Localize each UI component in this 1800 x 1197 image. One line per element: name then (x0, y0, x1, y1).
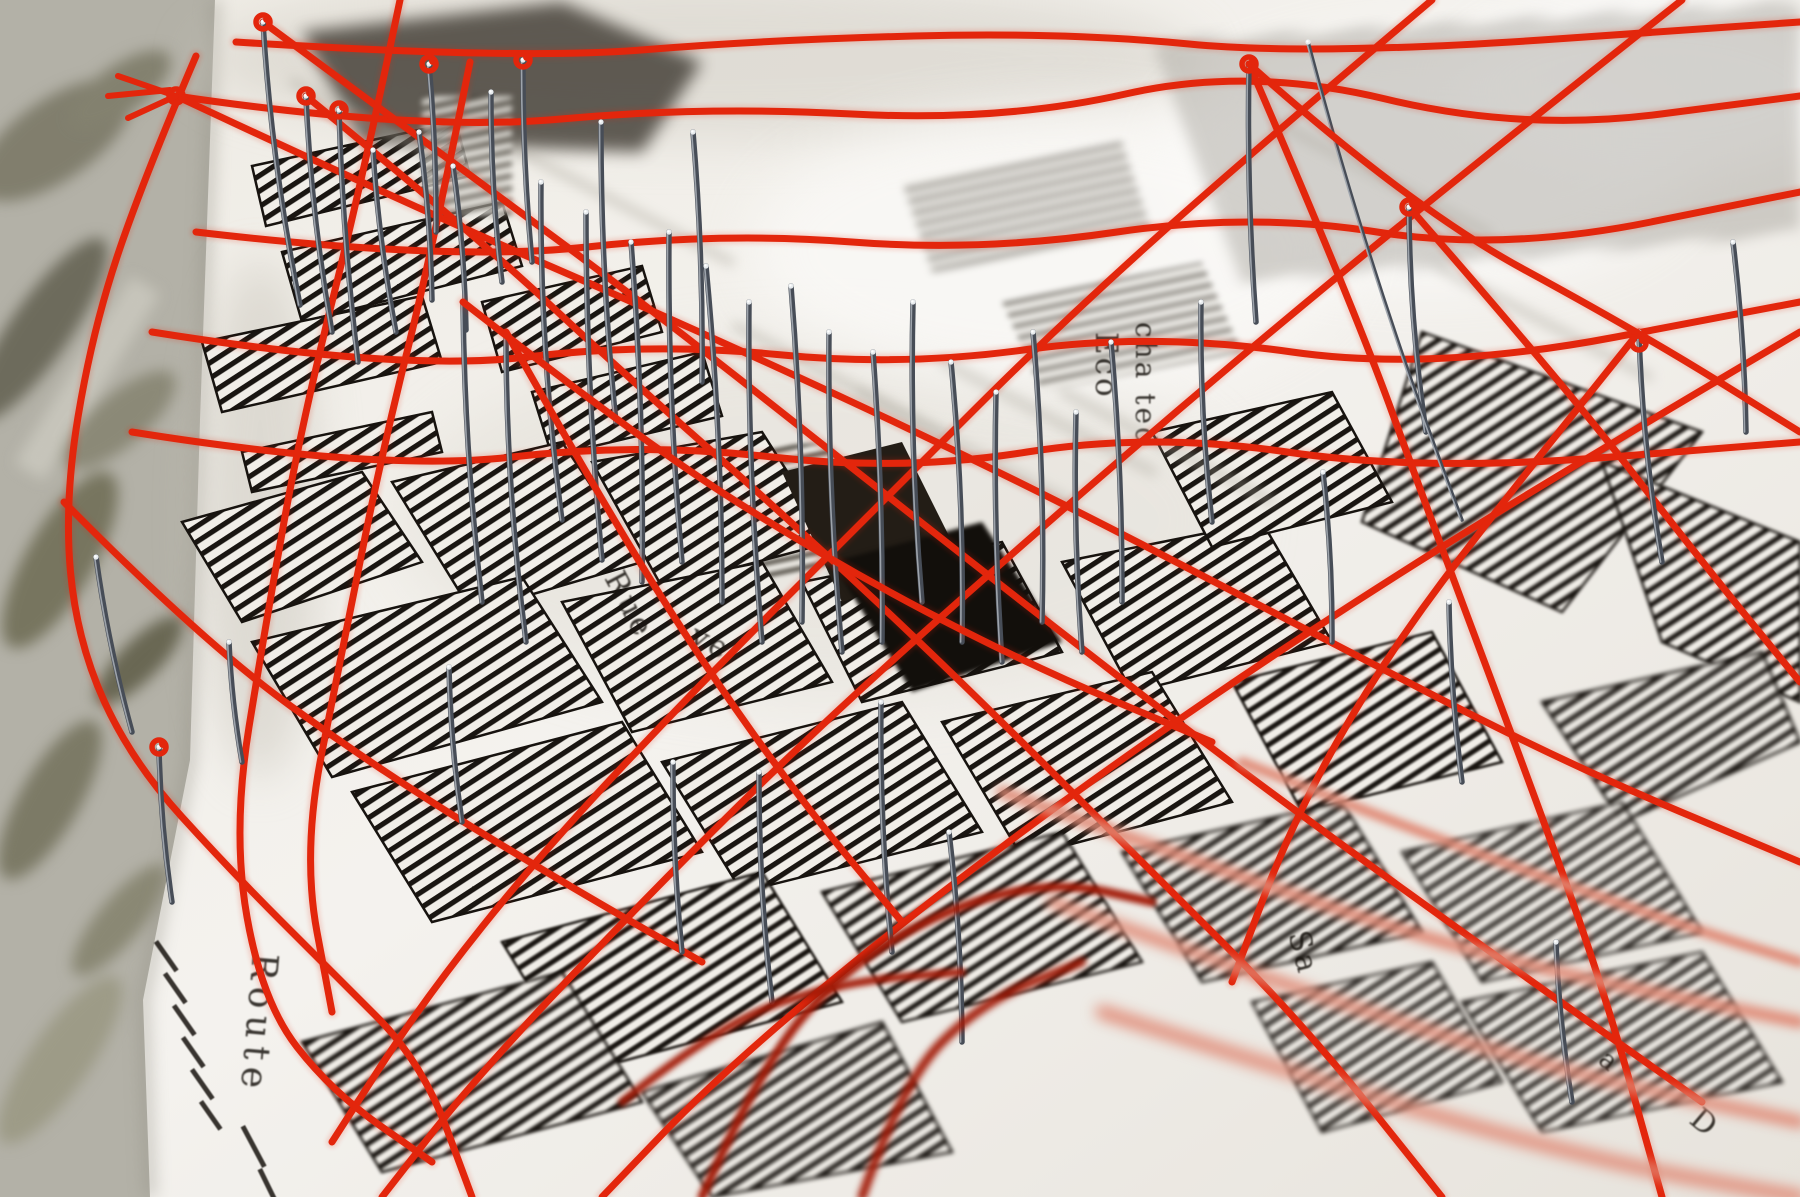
thread-knot-wrap (263, 15, 271, 23)
pin-tip-glint (1447, 600, 1449, 602)
pin-tip-glint (691, 130, 693, 132)
pin-tip-glint (871, 350, 873, 352)
pin-tip-glint (599, 120, 601, 122)
thread-knot-wrap (339, 103, 347, 111)
pin-tip-glint (757, 770, 759, 772)
pin-tip-glint (747, 300, 749, 302)
stitched-map-scene: RouteRueveEcocha tedSaaD (0, 0, 1800, 1197)
pin-tip-glint (947, 830, 949, 832)
pin-tip-glint (427, 62, 429, 64)
thread-knot-wrap (306, 89, 314, 97)
pin-tip-glint (94, 555, 96, 557)
pin-tip-glint (337, 108, 339, 110)
pin-tip-glint (911, 300, 913, 302)
pin-tip-glint (994, 390, 996, 392)
pin-tip-glint (1554, 940, 1556, 942)
pin-tip-glint (521, 58, 523, 60)
artwork-photo: RouteRueveEcocha tedSaaD (0, 0, 1800, 1197)
pin-tip-glint (1321, 470, 1323, 472)
pin-tip-glint (789, 284, 791, 286)
thread-knot-wrap (429, 57, 437, 65)
pin-tip-glint (539, 180, 541, 182)
thread-knot-wrap (1249, 57, 1257, 65)
pin-tip-glint (227, 640, 229, 642)
pin-tip-glint (671, 760, 673, 762)
pin-tip-glint (1731, 240, 1733, 242)
pin-tip-glint (1109, 340, 1111, 342)
pin-tip-glint (489, 90, 491, 92)
pin-tip-glint (1407, 205, 1409, 207)
pin-tip-glint (1031, 330, 1033, 332)
pin-tip-glint (447, 665, 449, 667)
pin-tip-glint (157, 745, 159, 747)
thread-knot-wrap (523, 53, 531, 61)
pin-tip-glint (704, 264, 706, 266)
thread-knot-wrap (1409, 200, 1417, 208)
pin-tip-glint (371, 148, 373, 150)
thread-knot-wrap (159, 740, 167, 748)
pin-tip-glint (304, 94, 306, 96)
pin-tip-glint (1199, 300, 1201, 302)
pin-tip-glint (949, 360, 951, 362)
pin-tip-glint (261, 20, 263, 22)
pin-tip-glint (584, 210, 586, 212)
thread-knot-wrap (1639, 336, 1647, 344)
pin-tip-glint (667, 230, 669, 232)
pin-tip-glint (879, 700, 881, 702)
pin-tip-glint (451, 164, 453, 166)
pin-tip-glint (827, 330, 829, 332)
pin-tip-glint (417, 130, 419, 132)
pin-tip-glint (1306, 40, 1308, 42)
pin-tip-glint (1074, 410, 1076, 412)
pin-tip-glint (629, 240, 631, 242)
